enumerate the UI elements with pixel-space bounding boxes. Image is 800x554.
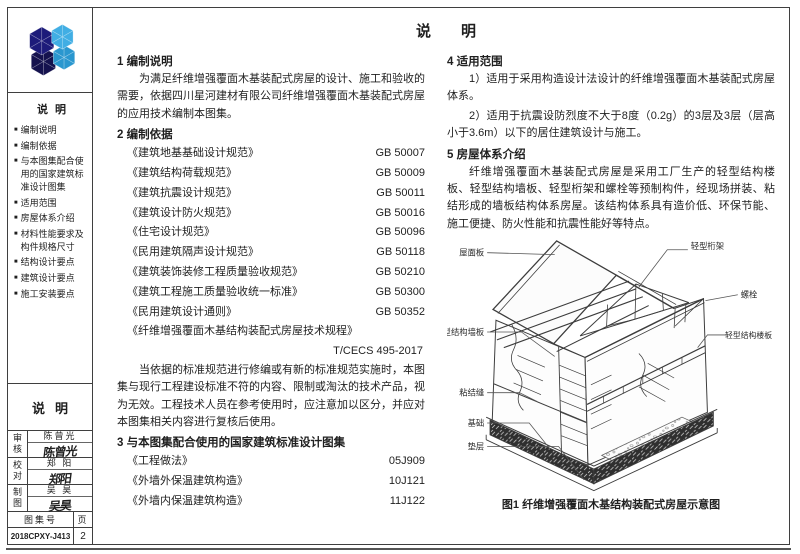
toc-item-label: 材料性能要求及构件规格尺寸 — [21, 228, 89, 254]
standard-code: T/CECS 495-2017 — [327, 342, 423, 362]
toc-item-label: 建筑设计要点 — [21, 272, 75, 285]
section-4-heading: 4 适用范围 — [447, 53, 775, 69]
standard-row: 《建筑结构荷载规范》GB 50009 — [117, 164, 425, 184]
standard-name: 《建筑工程施工质量验收统一标准》 — [127, 283, 303, 303]
bullet-square-icon: ■ — [14, 140, 18, 153]
figure-1: 屋面板 轻型桁架 螺栓 轻型结构楼板 轻型结构墙板 粘结缝 基础 垫层 图1 纤… — [447, 238, 775, 512]
standard-row: 《纤维增强覆面木基结构装配式房屋技术规程》 — [117, 322, 425, 342]
standard-row: 《住宅设计规范》GB 50096 — [117, 223, 425, 243]
standard-code: GB 50011 — [370, 184, 425, 204]
standard-name: 《纤维增强覆面木基结构装配式房屋技术规程》 — [127, 322, 358, 342]
label-floor-panel: 轻型结构楼板 — [725, 330, 772, 340]
house-linework — [486, 241, 717, 491]
standard-row: 《建筑设计防火规范》GB 50016 — [117, 204, 425, 224]
toc-item-label: 房屋体系介绍 — [21, 212, 75, 225]
toc-item: ■与本图集配合使用的国家建筑标准设计图集 — [14, 155, 89, 194]
standard-row: 《民用建筑设计通则》GB 50352 — [117, 303, 425, 323]
bullet-square-icon: ■ — [14, 124, 18, 137]
toc-item: ■材料性能要求及构件规格尺寸 — [14, 228, 89, 254]
approval-role: 制图 — [8, 485, 28, 511]
label-cushion: 垫层 — [468, 441, 485, 451]
standard-code: GB 50352 — [369, 303, 425, 323]
standard-name: 《建筑装饰装修工程质量验收规范》 — [127, 263, 303, 283]
standard-name: 《民用建筑隔声设计规范》 — [127, 243, 259, 263]
standard-code: GB 50096 — [369, 223, 425, 243]
standard-row: 《建筑地基基础设计规范》GB 50007 — [117, 144, 425, 164]
section-4-item-1: 1）适用于采用构造设计法设计的纤维增强覆面木基装配式房屋体系。 — [447, 71, 775, 106]
figure-caption: 图1 纤维增强覆面木基结构装配式房屋示意图 — [447, 496, 775, 512]
house-axonometric-drawing: 屋面板 轻型桁架 螺栓 轻型结构楼板 轻型结构墙板 粘结缝 基础 垫层 — [447, 238, 775, 495]
section-1-paragraph: 为满足纤维增强覆面木基装配式房屋的设计、施工和验收的需要，依据四川星河建材有限公… — [117, 71, 425, 123]
label-bolt: 螺栓 — [741, 290, 758, 300]
atlas-row: 《工程做法》05J909 — [117, 452, 425, 472]
atlas-number: 2018CPXY-J413 — [8, 528, 73, 544]
bullet-square-icon: ■ — [14, 155, 18, 194]
section-2-paragraph: 当依据的标准规范进行修编或有新的标准规范实施时，本图集与现行工程建设标准不符的内… — [117, 362, 425, 432]
standard-name: 《住宅设计规范》 — [127, 223, 215, 243]
section-5-paragraph: 纤维增强覆面木基装配式房屋是采用工厂生产的轻型结构楼板、轻型结构墙板、轻型桁架和… — [447, 164, 775, 234]
label-bond-joint: 粘结缝 — [459, 388, 484, 398]
sheet-title-box: 说明 — [8, 383, 92, 430]
toc-item: ■编制说明 — [14, 124, 89, 137]
toc-item: ■结构设计要点 — [14, 256, 89, 269]
toc-item: ■施工安装要点 — [14, 288, 89, 301]
label-roof-panel: 屋面板 — [459, 248, 485, 258]
bullet-square-icon: ■ — [14, 272, 18, 285]
approval-row-drafter: 制图 吴 昊 吴昊 — [8, 485, 92, 512]
standard-code: GB 50007 — [369, 144, 425, 164]
toc-item-label: 施工安装要点 — [21, 288, 75, 301]
bullet-square-icon: ■ — [14, 228, 18, 254]
atlas-row: 《外墙外保温建筑构造》10J121 — [117, 472, 425, 492]
atlas-name: 《工程做法》 — [127, 452, 193, 472]
bullet-square-icon: ■ — [14, 212, 18, 225]
approval-signature: 吴昊 — [27, 495, 94, 515]
document-page: 说明 ■编制说明 ■编制依据 ■与本图集配合使用的国家建筑标准设计图集 ■适用范… — [7, 7, 790, 545]
standard-row: 《民用建筑隔声设计规范》GB 50118 — [117, 243, 425, 263]
logo-box — [8, 8, 92, 93]
bullet-square-icon: ■ — [14, 256, 18, 269]
standard-row: 《建筑装饰装修工程质量验收规范》GB 50210 — [117, 263, 425, 283]
approval-signature: 陈曾光 — [27, 441, 94, 461]
approval-signature: 郑阳 — [27, 468, 94, 488]
page-title: 说明 — [117, 20, 775, 41]
bullet-square-icon: ■ — [14, 288, 18, 301]
standard-name: 《建筑地基基础设计规范》 — [127, 144, 259, 164]
toc-item: ■编制依据 — [14, 140, 89, 153]
page-label: 页 — [73, 512, 92, 527]
atlas-code: 10J121 — [383, 472, 425, 492]
toc-item: ■房屋体系介绍 — [14, 212, 89, 225]
atlas-row: 《外墙内保温建筑构造》11J122 — [117, 492, 425, 512]
standard-name: 《建筑抗震设计规范》 — [127, 184, 237, 204]
approval-role: 校对 — [8, 458, 28, 484]
toc-item-label: 与本图集配合使用的国家建筑标准设计图集 — [21, 155, 89, 194]
bullet-square-icon: ■ — [14, 197, 18, 210]
sidebar-toc: 说明 ■编制说明 ■编制依据 ■与本图集配合使用的国家建筑标准设计图集 ■适用范… — [8, 93, 92, 383]
approval-role: 审核 — [8, 431, 28, 457]
approval-table: 审核 陈曾光 陈曾光 校对 郑 阳 郑阳 制图 吴 昊 吴昊 — [8, 430, 92, 512]
toc-item: ■适用范围 — [14, 197, 89, 210]
approval-row-proofreader: 校对 郑 阳 郑阳 — [8, 458, 92, 485]
toc-item: ■建筑设计要点 — [14, 272, 89, 285]
section-3-heading: 3 与本图集配合使用的国家建筑标准设计图集 — [117, 434, 425, 450]
standard-code: GB 50210 — [369, 263, 425, 283]
company-logo — [17, 19, 83, 81]
toc-item-label: 适用范围 — [21, 197, 57, 210]
standard-name: 《民用建筑设计通则》 — [127, 303, 237, 323]
section-4-item-2: 2）适用于抗震设防烈度不大于8度（0.2g）的3层及3层（层高小于3.6m）以下… — [447, 108, 775, 143]
section-1-heading: 1 编制说明 — [117, 53, 425, 69]
section-5-heading: 5 房屋体系介绍 — [447, 146, 775, 162]
toc-item-label: 结构设计要点 — [21, 256, 75, 269]
standard-code: GB 50118 — [370, 243, 425, 263]
standard-row: 《建筑工程施工质量验收统一标准》GB 50300 — [117, 283, 425, 303]
label-truss: 轻型桁架 — [691, 241, 724, 251]
atlas-footer: 图集号 页 2018CPXY-J413 2 — [8, 512, 92, 544]
section-2-heading: 2 编制依据 — [117, 126, 425, 142]
toc-title: 说明 — [14, 101, 89, 117]
standard-code: GB 50300 — [369, 283, 425, 303]
standard-row: T/CECS 495-2017 — [117, 342, 425, 362]
atlas-name: 《外墙内保温建筑构造》 — [127, 492, 248, 512]
label-wall-panel: 轻型结构墙板 — [447, 327, 485, 337]
standard-name: 《建筑设计防火规范》 — [127, 204, 237, 224]
left-column: 1 编制说明 为满足纤维增强覆面木基装配式房屋的设计、施工和验收的需要，依据四川… — [117, 50, 425, 512]
approval-row-reviewer: 审核 陈曾光 陈曾光 — [8, 431, 92, 458]
right-column: 4 适用范围 1）适用于采用构造设计法设计的纤维增强覆面木基装配式房屋体系。 2… — [447, 50, 775, 512]
atlas-name: 《外墙外保温建筑构造》 — [127, 472, 248, 492]
standard-code: GB 50016 — [369, 204, 425, 224]
sheet-body: 说明 1 编制说明 为满足纤维增强覆面木基装配式房屋的设计、施工和验收的需要，依… — [93, 8, 789, 544]
label-foundation: 基础 — [468, 418, 485, 428]
atlas-code: 11J122 — [384, 492, 425, 512]
page-number: 2 — [73, 528, 92, 544]
atlas-code: 05J909 — [383, 452, 425, 472]
standard-name: 《建筑结构荷载规范》 — [127, 164, 237, 184]
toc-item-label: 编制依据 — [21, 140, 57, 153]
standard-row: 《建筑抗震设计规范》GB 50011 — [117, 184, 425, 204]
toc-item-label: 编制说明 — [21, 124, 57, 137]
standard-code: GB 50009 — [369, 164, 425, 184]
title-block-sidebar: 说明 ■编制说明 ■编制依据 ■与本图集配合使用的国家建筑标准设计图集 ■适用范… — [8, 8, 93, 544]
